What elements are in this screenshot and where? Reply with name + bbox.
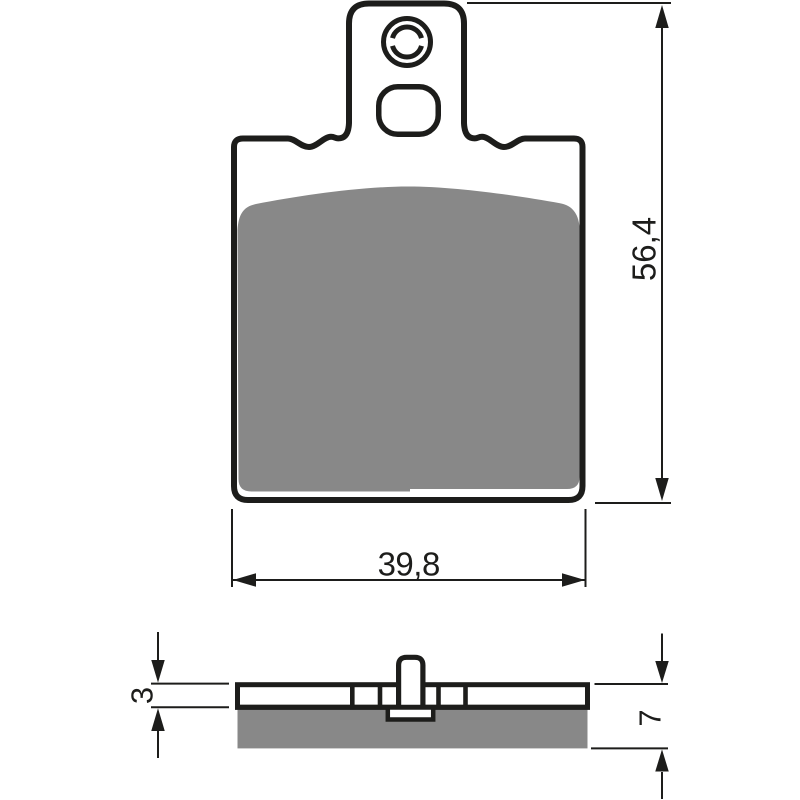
svg-text:39,8: 39,8 <box>378 546 440 583</box>
svg-text:56,4: 56,4 <box>626 217 663 281</box>
svg-text:7: 7 <box>633 709 668 726</box>
svg-text:3: 3 <box>125 687 160 704</box>
